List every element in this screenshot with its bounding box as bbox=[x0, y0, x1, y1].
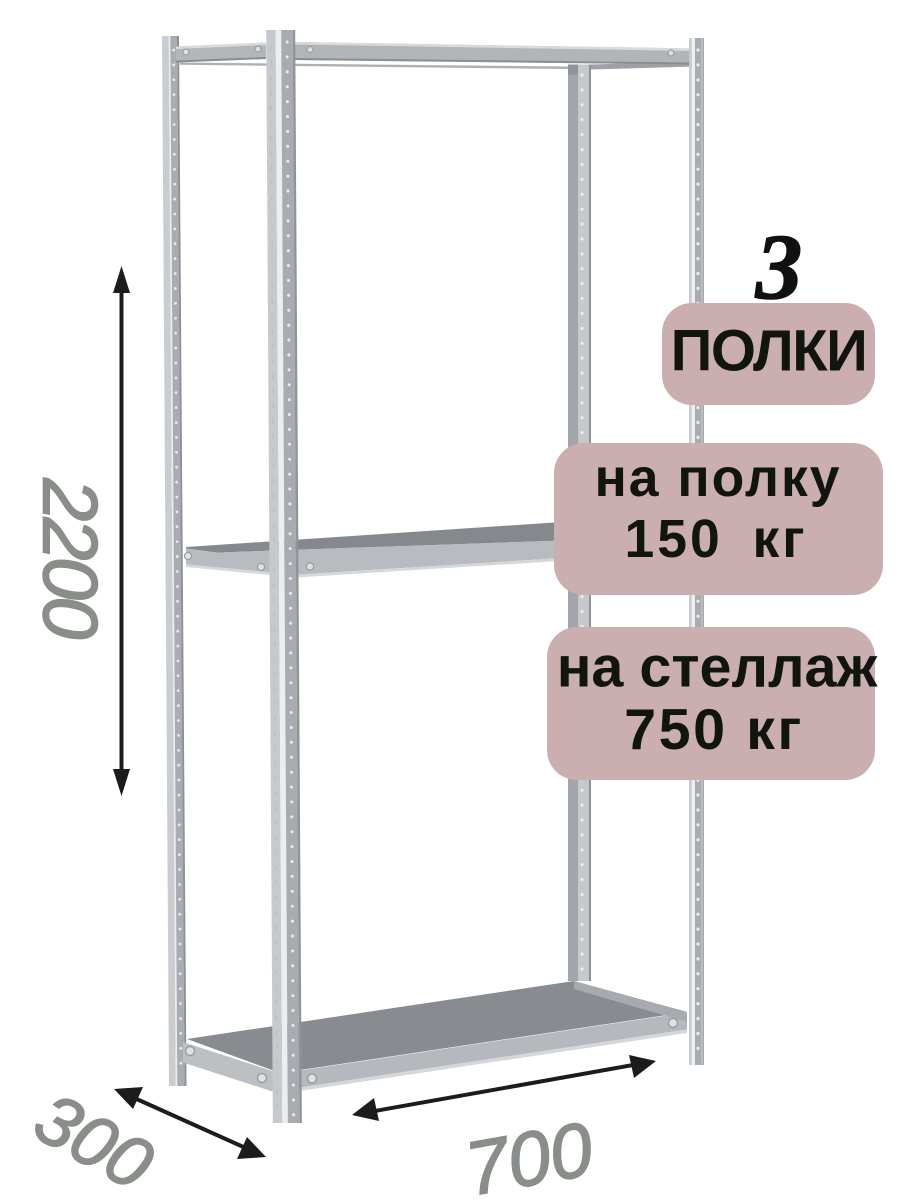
svg-text:на стеллаж: на стеллаж bbox=[557, 636, 879, 700]
svg-text:300: 300 bbox=[22, 1078, 166, 1200]
svg-text:700: 700 bbox=[459, 1107, 599, 1200]
svg-text:на полку: на полку bbox=[594, 449, 841, 508]
svg-text:750 кг: 750 кг bbox=[624, 698, 804, 762]
svg-text:ПОЛКИ: ПОЛКИ bbox=[671, 319, 867, 384]
svg-text:2200: 2200 bbox=[27, 477, 113, 639]
svg-text:150 кг: 150 кг bbox=[624, 510, 807, 569]
